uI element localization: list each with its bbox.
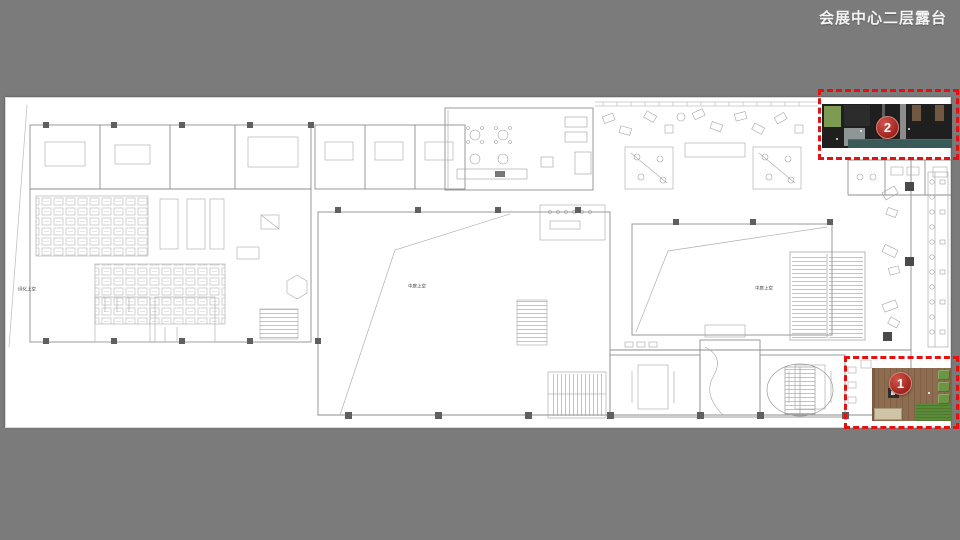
floorplan-sheet: 中庭上空 中庭上空 绿化上空: [5, 97, 951, 427]
marker-badge-1: 1: [889, 372, 912, 395]
floorplan-drawing: [5, 97, 951, 428]
stair-bottom-mid: [548, 372, 606, 418]
slide-title: 会展中心二层露台: [819, 7, 947, 28]
marker-badge-2: 2: [876, 116, 899, 139]
green-edge-label: 绿化上空: [18, 285, 36, 292]
atrium-left-label: 中庭上空: [408, 282, 426, 289]
atrium-right-label: 中庭上空: [755, 284, 773, 291]
slide-canvas: 会展中心二层露台: [0, 0, 960, 540]
